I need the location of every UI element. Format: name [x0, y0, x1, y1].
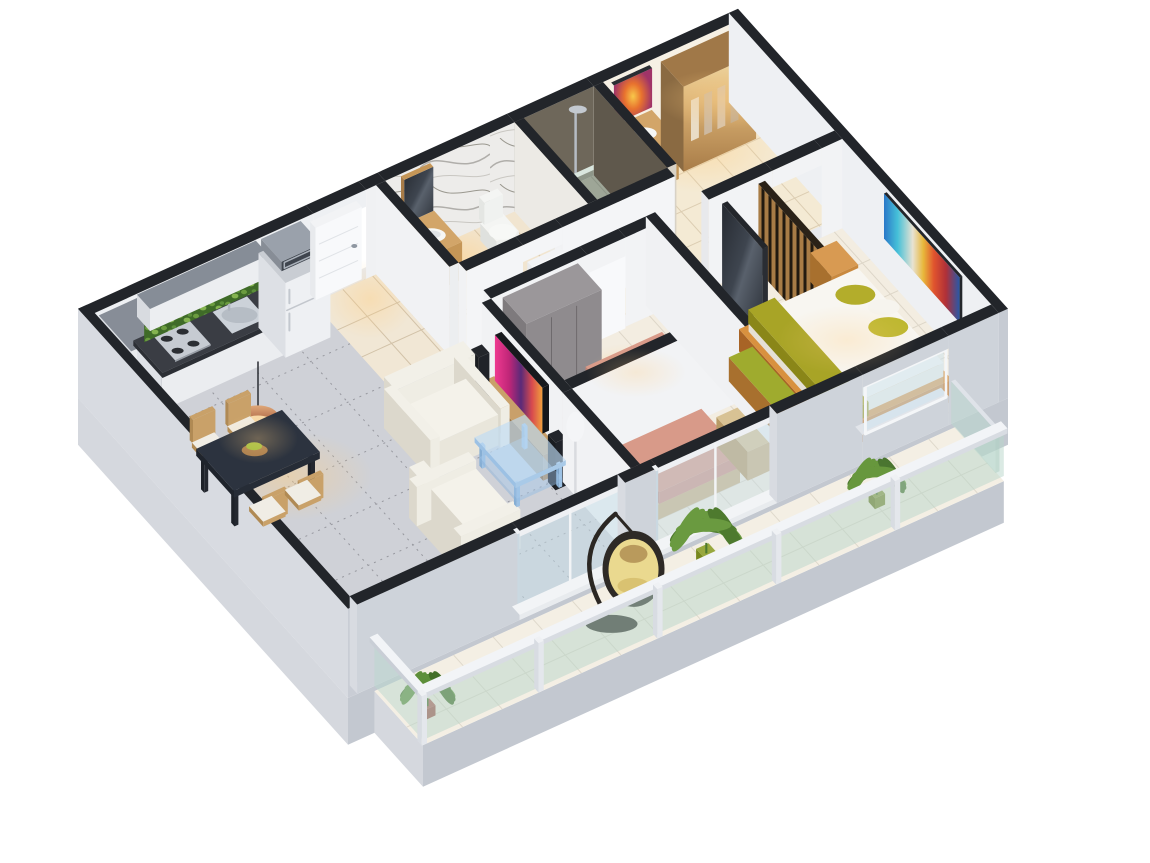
- hob-burner: [177, 329, 189, 335]
- floor-plan-3d-render: [0, 0, 1150, 863]
- balcony-post: [653, 582, 663, 639]
- balcony-post: [772, 528, 782, 585]
- balcony-post: [534, 636, 544, 693]
- hob-burner: [161, 336, 173, 342]
- master-pillow-olive: [835, 285, 875, 305]
- sink-basin: [222, 307, 258, 323]
- shower-head: [569, 106, 587, 114]
- balcony-post: [891, 474, 901, 530]
- pendant-halo-glow: [218, 414, 298, 464]
- entry-door-handle: [351, 244, 357, 248]
- hob-burner: [172, 348, 184, 354]
- floor-lamp-shade: [566, 412, 584, 442]
- bed2-spot-glow: [586, 348, 686, 398]
- master-bed-glow: [777, 305, 917, 375]
- hob-burner: [187, 341, 199, 347]
- balcony-post: [417, 689, 427, 746]
- apartment-isometric-scene: [0, 0, 1150, 863]
- toilet-seat: [489, 224, 517, 240]
